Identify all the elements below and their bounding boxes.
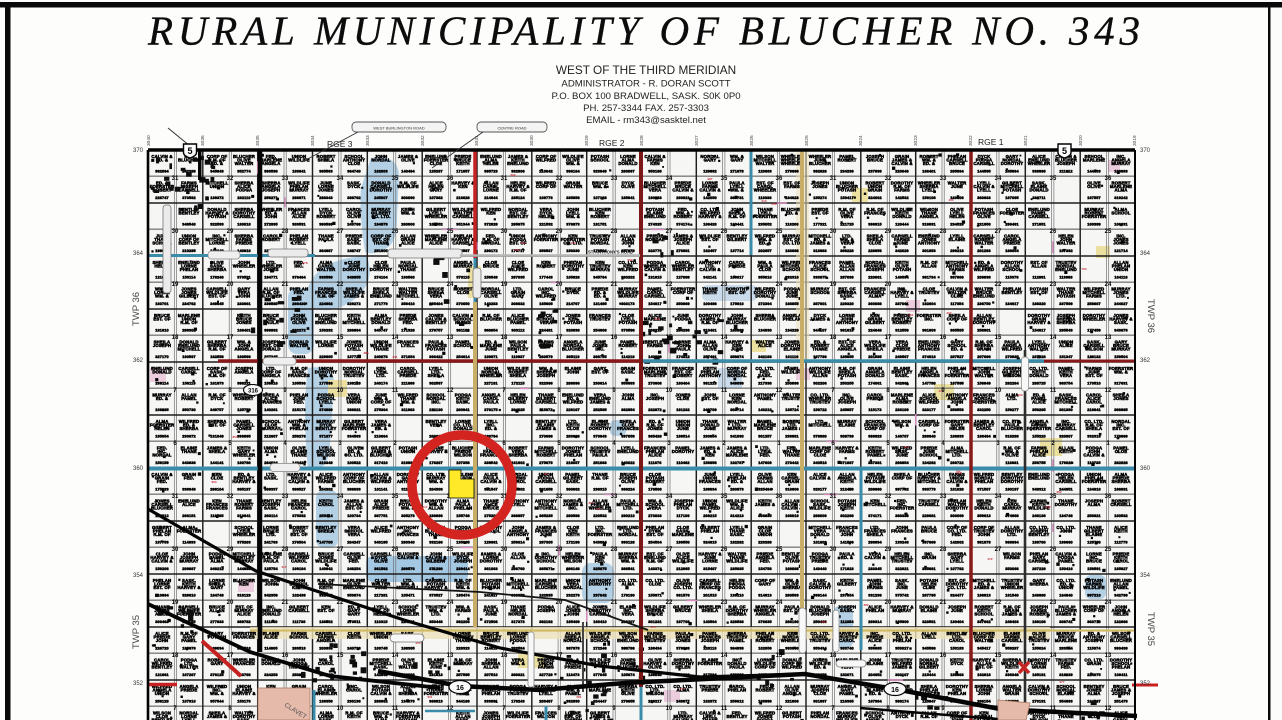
svg-text:WEST OF THE THIRD MERIDIAN: WEST OF THE THIRD MERIDIAN bbox=[556, 63, 736, 77]
svg-text:TWP 35: TWP 35 bbox=[1145, 612, 1156, 646]
svg-text:RGE 1: RGE 1 bbox=[978, 137, 1004, 147]
svg-text:TWP 36: TWP 36 bbox=[131, 292, 142, 326]
svg-text:352: 352 bbox=[133, 681, 144, 687]
svg-text:3024: 3024 bbox=[858, 135, 864, 146]
svg-text:360: 360 bbox=[1140, 466, 1151, 472]
svg-text:362: 362 bbox=[133, 358, 144, 364]
svg-text:3022: 3022 bbox=[968, 135, 974, 146]
svg-text:364: 364 bbox=[1140, 251, 1151, 257]
svg-text:364: 364 bbox=[133, 251, 144, 257]
svg-text:370: 370 bbox=[133, 148, 144, 154]
svg-text:PH. 257-3344 FAX. 257-3303: PH. 257-3344 FAX. 257-3303 bbox=[583, 103, 709, 114]
svg-text:3021: 3021 bbox=[1023, 135, 1029, 146]
svg-text:354: 354 bbox=[1140, 573, 1151, 579]
svg-text:3025: 3025 bbox=[804, 135, 810, 146]
svg-text:3027: 3027 bbox=[694, 135, 700, 146]
svg-text:3040: 3040 bbox=[146, 135, 152, 146]
svg-text:3028: 3028 bbox=[639, 135, 645, 146]
svg-text:3023: 3023 bbox=[913, 135, 919, 146]
svg-text:3020: 3020 bbox=[1078, 135, 1084, 146]
svg-text:3032: 3032 bbox=[420, 135, 426, 146]
svg-text:3030: 3030 bbox=[529, 135, 535, 146]
svg-text:EMAIL - rm343@sasktel.net: EMAIL - rm343@sasktel.net bbox=[586, 115, 706, 126]
svg-text:CENTRE ROAD: CENTRE ROAD bbox=[497, 126, 526, 131]
svg-text:354: 354 bbox=[133, 573, 144, 579]
svg-text:360: 360 bbox=[133, 466, 144, 472]
svg-text:3019: 3019 bbox=[1132, 135, 1138, 146]
svg-text:370: 370 bbox=[1140, 148, 1151, 154]
svg-text:P.O. BOX 100 BRADWELL, SASK. S: P.O. BOX 100 BRADWELL, SASK. S0K 0P0 bbox=[551, 91, 740, 102]
svg-text:3033: 3033 bbox=[365, 135, 371, 146]
svg-text:RGE 2: RGE 2 bbox=[599, 138, 625, 148]
svg-text:WEST BURLINGTON ROAD: WEST BURLINGTON ROAD bbox=[373, 126, 425, 131]
svg-text:3029: 3029 bbox=[584, 135, 590, 146]
svg-text:RGE 3: RGE 3 bbox=[327, 139, 353, 149]
svg-text:3035: 3035 bbox=[255, 135, 261, 146]
svg-text:TWP 35: TWP 35 bbox=[131, 615, 142, 649]
svg-text:ADMINISTRATOR - R. DORAN SCOTT: ADMINISTRATOR - R. DORAN SCOTT bbox=[561, 79, 730, 90]
svg-text:352: 352 bbox=[1140, 681, 1151, 687]
svg-text:3036: 3036 bbox=[200, 135, 206, 146]
svg-text:3026: 3026 bbox=[749, 135, 755, 146]
svg-text:362: 362 bbox=[1140, 358, 1151, 364]
svg-text:TWP 36: TWP 36 bbox=[1145, 299, 1156, 333]
svg-text:3034: 3034 bbox=[310, 135, 316, 146]
